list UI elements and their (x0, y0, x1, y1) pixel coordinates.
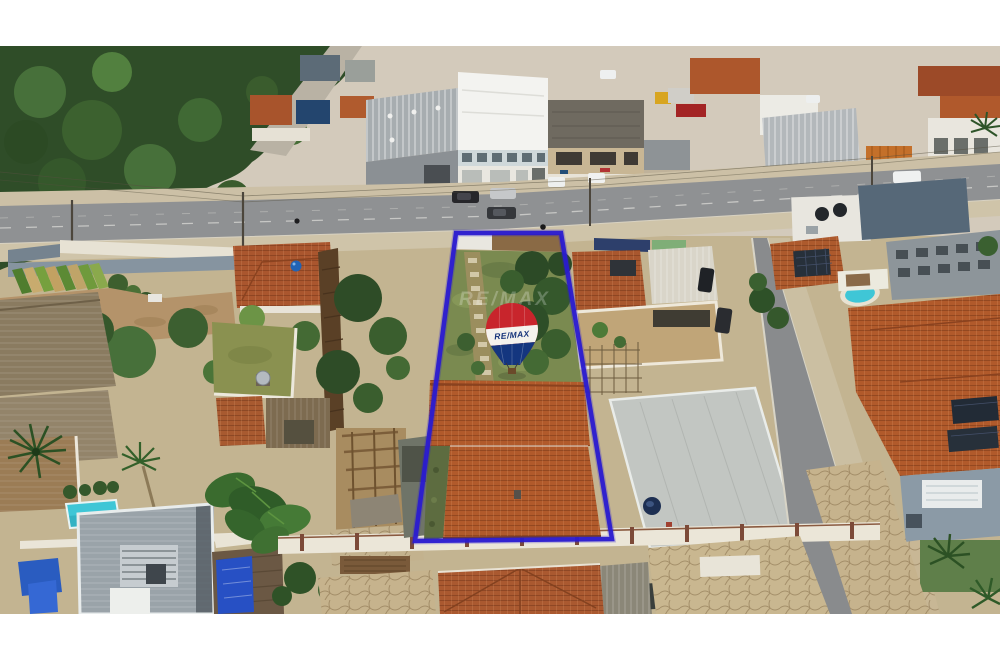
motorcycle (540, 224, 546, 230)
water-tank-dark (815, 207, 829, 221)
aerial-photo-canvas: RE/MAX RE/MAX (0, 0, 1000, 667)
water-tank-blue (291, 261, 302, 272)
white-wall (252, 128, 310, 141)
dirt-strip (492, 234, 564, 252)
white-shed (700, 555, 761, 577)
white-car (600, 70, 616, 79)
roof-skylight (610, 260, 636, 276)
carport (653, 310, 710, 327)
orange-roof-house (250, 95, 292, 125)
swimming-pool-blue (216, 556, 254, 614)
shop-sign (560, 170, 568, 174)
white-car (806, 95, 820, 103)
white-warehouse (458, 72, 548, 192)
lot-house (424, 380, 601, 540)
gray-roof-house (300, 55, 340, 81)
solar-panels (947, 426, 999, 452)
motorcycle (294, 218, 299, 223)
backyard-lawn (212, 322, 296, 398)
shop-sign (600, 168, 610, 172)
roof-parapet-box (110, 588, 150, 614)
water-tank-dark (833, 203, 847, 217)
balloon-basket (508, 368, 516, 374)
aerial-photo: RE/MAX RE/MAX (0, 0, 1000, 667)
blue-tarp (28, 580, 58, 614)
white-car (893, 171, 921, 184)
navy-flat-building (858, 178, 970, 240)
water-tank-gray (256, 371, 270, 385)
solar-panels (951, 396, 999, 424)
blue-canopy (594, 238, 650, 252)
balcony (922, 480, 982, 508)
letterbox-bottom (0, 614, 1000, 667)
modern-house (78, 504, 214, 614)
gray-warehouse (366, 88, 458, 196)
red-truck (676, 104, 706, 117)
letterbox-top (0, 0, 1000, 46)
gray-roof-house (345, 60, 375, 82)
debris (148, 294, 162, 302)
two-storey-house (900, 468, 1000, 544)
blue-roof-house (296, 100, 330, 124)
roof-vent (514, 490, 521, 499)
